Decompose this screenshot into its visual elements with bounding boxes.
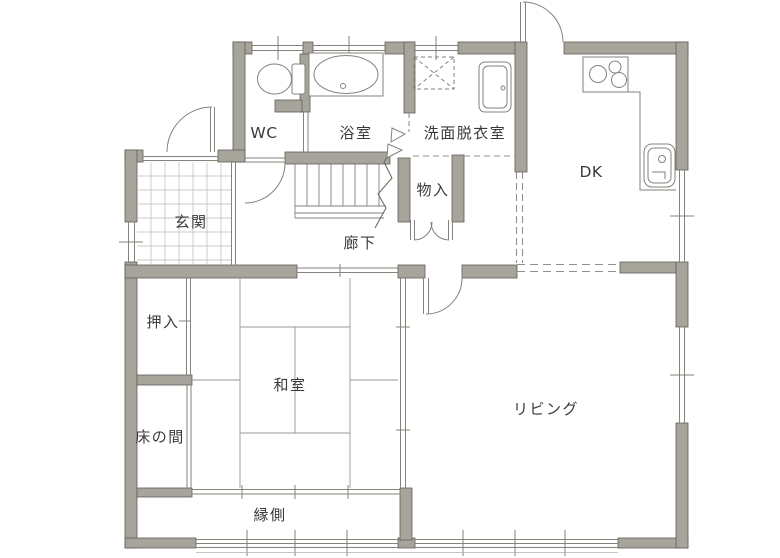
room-label-tokonoma: 床の間 xyxy=(135,428,185,446)
entrance-door xyxy=(167,107,215,152)
room-label-veranda: 縁側 xyxy=(253,506,286,524)
room-label-entrance: 玄関 xyxy=(174,213,207,231)
kitchen-sink xyxy=(644,144,675,187)
room-label-bathroom: 浴室 xyxy=(339,124,372,142)
floor-plan-drawing: WC 浴室 洗面脱衣室 DK 玄関 物入 廊下 押入 和室 リビング 床の間 縁… xyxy=(0,0,780,558)
windows xyxy=(119,36,694,556)
room-label-closet: 押入 xyxy=(146,313,179,331)
room-label-washroom: 洗面脱衣室 xyxy=(424,124,507,142)
room-labels: WC 浴室 洗面脱衣室 DK 玄関 物入 廊下 押入 和室 リビング 床の間 縁… xyxy=(135,124,603,524)
bathroom-folding-door xyxy=(387,128,405,158)
room-label-storage: 物入 xyxy=(416,181,449,199)
washbasin xyxy=(479,62,511,112)
gas-stove xyxy=(583,57,628,92)
room-label-living: リビング xyxy=(513,400,579,418)
bathtub xyxy=(309,53,383,96)
fixtures xyxy=(258,53,677,190)
living-door xyxy=(424,278,463,314)
dk-back-door xyxy=(521,2,564,42)
room-label-tatami-room: 和室 xyxy=(273,376,306,394)
walls xyxy=(125,42,688,548)
storage-double-doors xyxy=(411,220,453,240)
wc-door xyxy=(245,163,285,203)
room-label-wc: WC xyxy=(250,124,277,142)
washing-machine-pan xyxy=(414,57,454,89)
floor-plan-page: WC 浴室 洗面脱衣室 DK 玄関 物入 廊下 押入 和室 リビング 床の間 縁… xyxy=(0,0,780,558)
room-label-dining-kitchen: DK xyxy=(579,163,602,181)
entrance-step-edge xyxy=(232,162,236,265)
toilet xyxy=(258,64,306,94)
room-label-hallway: 廊下 xyxy=(343,234,376,252)
